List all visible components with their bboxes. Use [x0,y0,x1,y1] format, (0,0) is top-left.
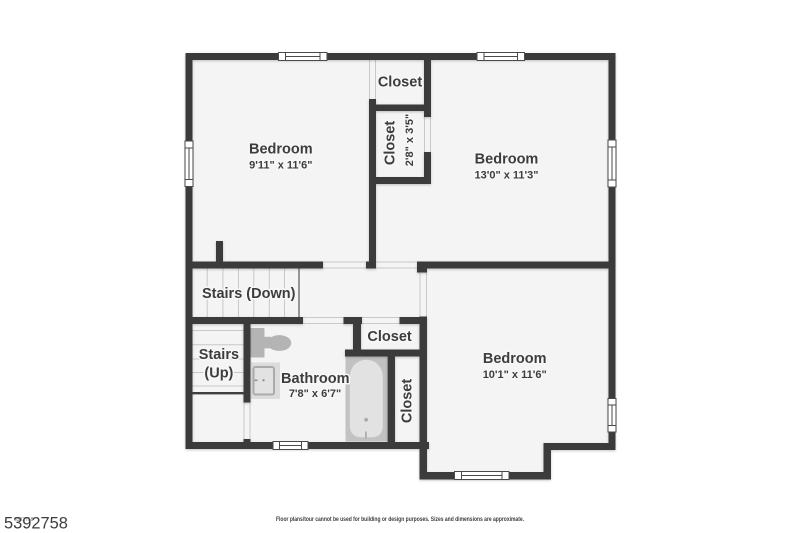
svg-text:9'11" x 11'6": 9'11" x 11'6" [249,160,312,172]
svg-text:Stairs: Stairs [199,347,239,363]
svg-text:Closet: Closet [400,379,416,423]
svg-text:Floor plans/tour cannot be use: Floor plans/tour cannot be used for buil… [276,516,524,523]
svg-text:5392758: 5392758 [14,517,34,523]
svg-text:Bedroom: Bedroom [483,351,547,367]
svg-text:13'0" x 11'3": 13'0" x 11'3" [475,170,539,182]
svg-text:Bedroom: Bedroom [249,142,313,158]
svg-text:Closet: Closet [367,329,411,345]
svg-text:Closet: Closet [383,121,399,165]
svg-text:(Up): (Up) [204,366,233,382]
svg-text:Bathroom: Bathroom [281,371,349,387]
svg-text:2'8" x 3'5": 2'8" x 3'5" [404,114,416,166]
svg-text:Closet: Closet [378,75,422,91]
svg-text:Bedroom: Bedroom [475,152,539,168]
svg-text:7'8" x 6'7": 7'8" x 6'7" [289,388,341,400]
svg-text:Stairs (Down): Stairs (Down) [202,286,296,302]
svg-text:10'1" x 11'6": 10'1" x 11'6" [483,369,547,381]
